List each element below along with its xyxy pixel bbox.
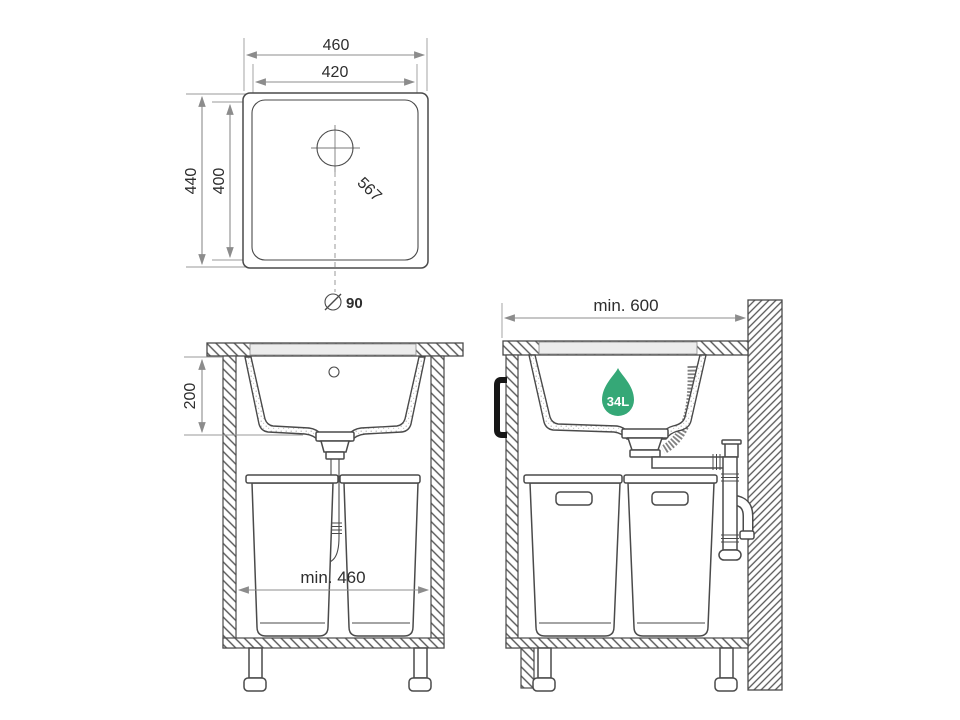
depth-dimension: 200 (182, 357, 303, 435)
label-cutout-height: 400 (211, 168, 228, 195)
vertical-drain-pipe (723, 457, 737, 550)
waste-bin (524, 475, 622, 636)
drain-assembly (316, 432, 354, 459)
label-outer-height: 440 (183, 168, 200, 195)
cabinet-feet (533, 648, 737, 691)
front-section-view: 200 min. 460 (182, 343, 463, 691)
cabinet-bottom (223, 638, 444, 648)
waste-bin (624, 475, 717, 636)
bin-handle-slot (652, 492, 688, 505)
overflow-hole (329, 367, 339, 377)
label-capacity: 34L (607, 394, 629, 409)
bin-handle-slot (556, 492, 592, 505)
side-section-view: min. 600 34L (497, 296, 782, 691)
cabinet-left-wall (223, 356, 236, 648)
label-bowl-depth: 200 (182, 383, 199, 410)
sink-rim (250, 344, 416, 355)
capacity-drop-icon: 34L (602, 368, 634, 416)
waste-bin (246, 475, 338, 636)
technical-drawing: 460 420 440 400 567 90 (0, 0, 960, 720)
vent-stub (725, 443, 738, 457)
wall (748, 300, 782, 690)
label-min-cabinet-width: min. 460 (300, 568, 365, 587)
sink-installation-diagram: 460 420 440 400 567 90 (0, 0, 960, 720)
sink-outer-edge (243, 93, 428, 268)
label-cutout-width: 420 (322, 64, 349, 81)
waste-bin (340, 475, 420, 636)
sink-bowl-section (245, 357, 425, 441)
diameter-icon (325, 294, 341, 310)
cabinet-feet (244, 648, 431, 691)
cabinet-front-panel (506, 355, 518, 648)
top-view: 460 420 440 400 567 90 (183, 37, 428, 312)
drain-assembly (622, 429, 668, 457)
label-outer-width: 460 (323, 37, 350, 54)
sink-rim (539, 342, 697, 354)
label-drain-diameter: 90 (346, 295, 363, 312)
cabinet-bottom (506, 638, 748, 648)
min-worktop-dimension: min. 600 (502, 296, 745, 338)
label-min-worktop-width: min. 600 (593, 296, 658, 315)
plinth-panel (521, 648, 534, 688)
cabinet-right-wall (431, 356, 444, 648)
